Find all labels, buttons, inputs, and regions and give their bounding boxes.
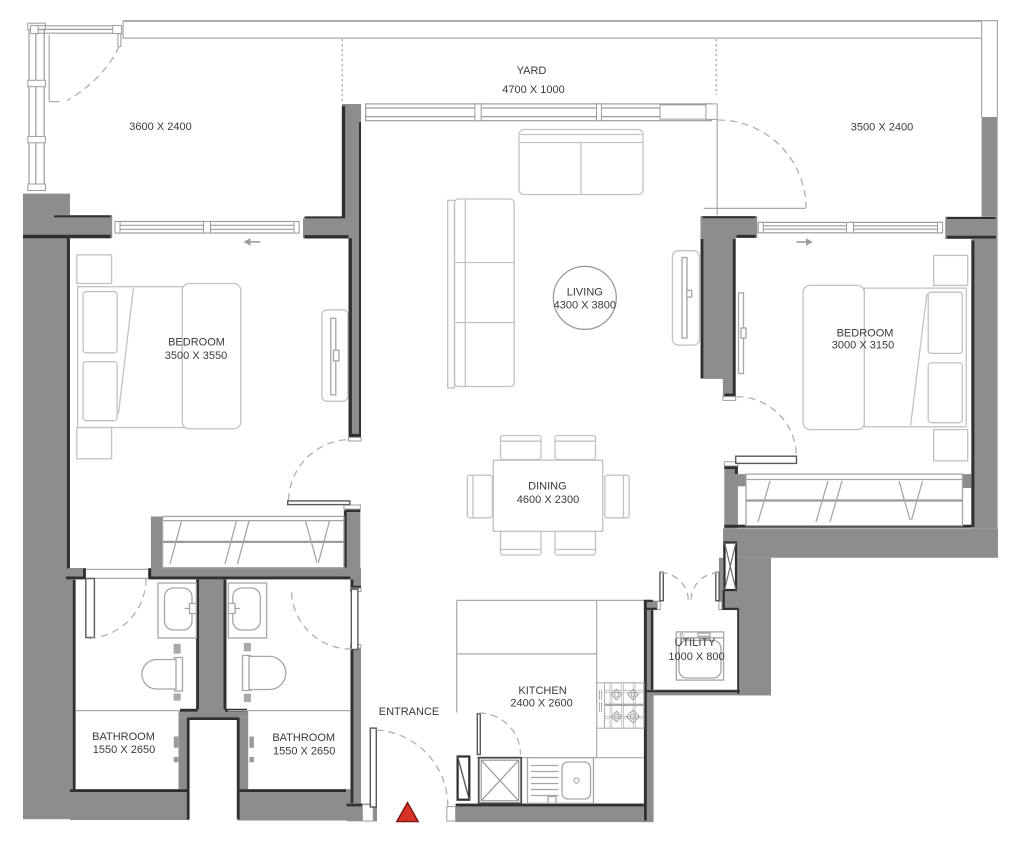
svg-text:4600 X 2300: 4600 X 2300 <box>517 494 579 506</box>
svg-text:3500 X 3550: 3500 X 3550 <box>165 350 227 362</box>
svg-text:4300 X 3800: 4300 X 3800 <box>554 299 616 311</box>
svg-text:4700 X 1000: 4700 X 1000 <box>502 84 564 96</box>
svg-text:ENTRANCE: ENTRANCE <box>379 706 440 718</box>
svg-text:3000 X 3150: 3000 X 3150 <box>832 340 894 352</box>
svg-text:YARD: YARD <box>517 65 547 77</box>
svg-text:1550 X 2650: 1550 X 2650 <box>273 746 335 758</box>
svg-text:3500 X 2400: 3500 X 2400 <box>851 122 913 134</box>
svg-text:2400 X 2600: 2400 X 2600 <box>510 698 572 710</box>
svg-text:BEDROOM: BEDROOM <box>837 327 894 339</box>
svg-text:BATHROOM: BATHROOM <box>92 731 155 743</box>
svg-text:BATHROOM: BATHROOM <box>272 732 335 744</box>
svg-text:1550 X 2650: 1550 X 2650 <box>93 744 155 756</box>
svg-text:3600 X 2400: 3600 X 2400 <box>129 121 191 133</box>
svg-text:UTILITY: UTILITY <box>675 637 717 649</box>
svg-text:LIVING: LIVING <box>567 286 603 298</box>
svg-text:1000 X 800: 1000 X 800 <box>668 651 724 663</box>
svg-text:KITCHEN: KITCHEN <box>518 685 566 697</box>
svg-text:BEDROOM: BEDROOM <box>168 336 225 348</box>
svg-text:DINING: DINING <box>528 481 567 493</box>
